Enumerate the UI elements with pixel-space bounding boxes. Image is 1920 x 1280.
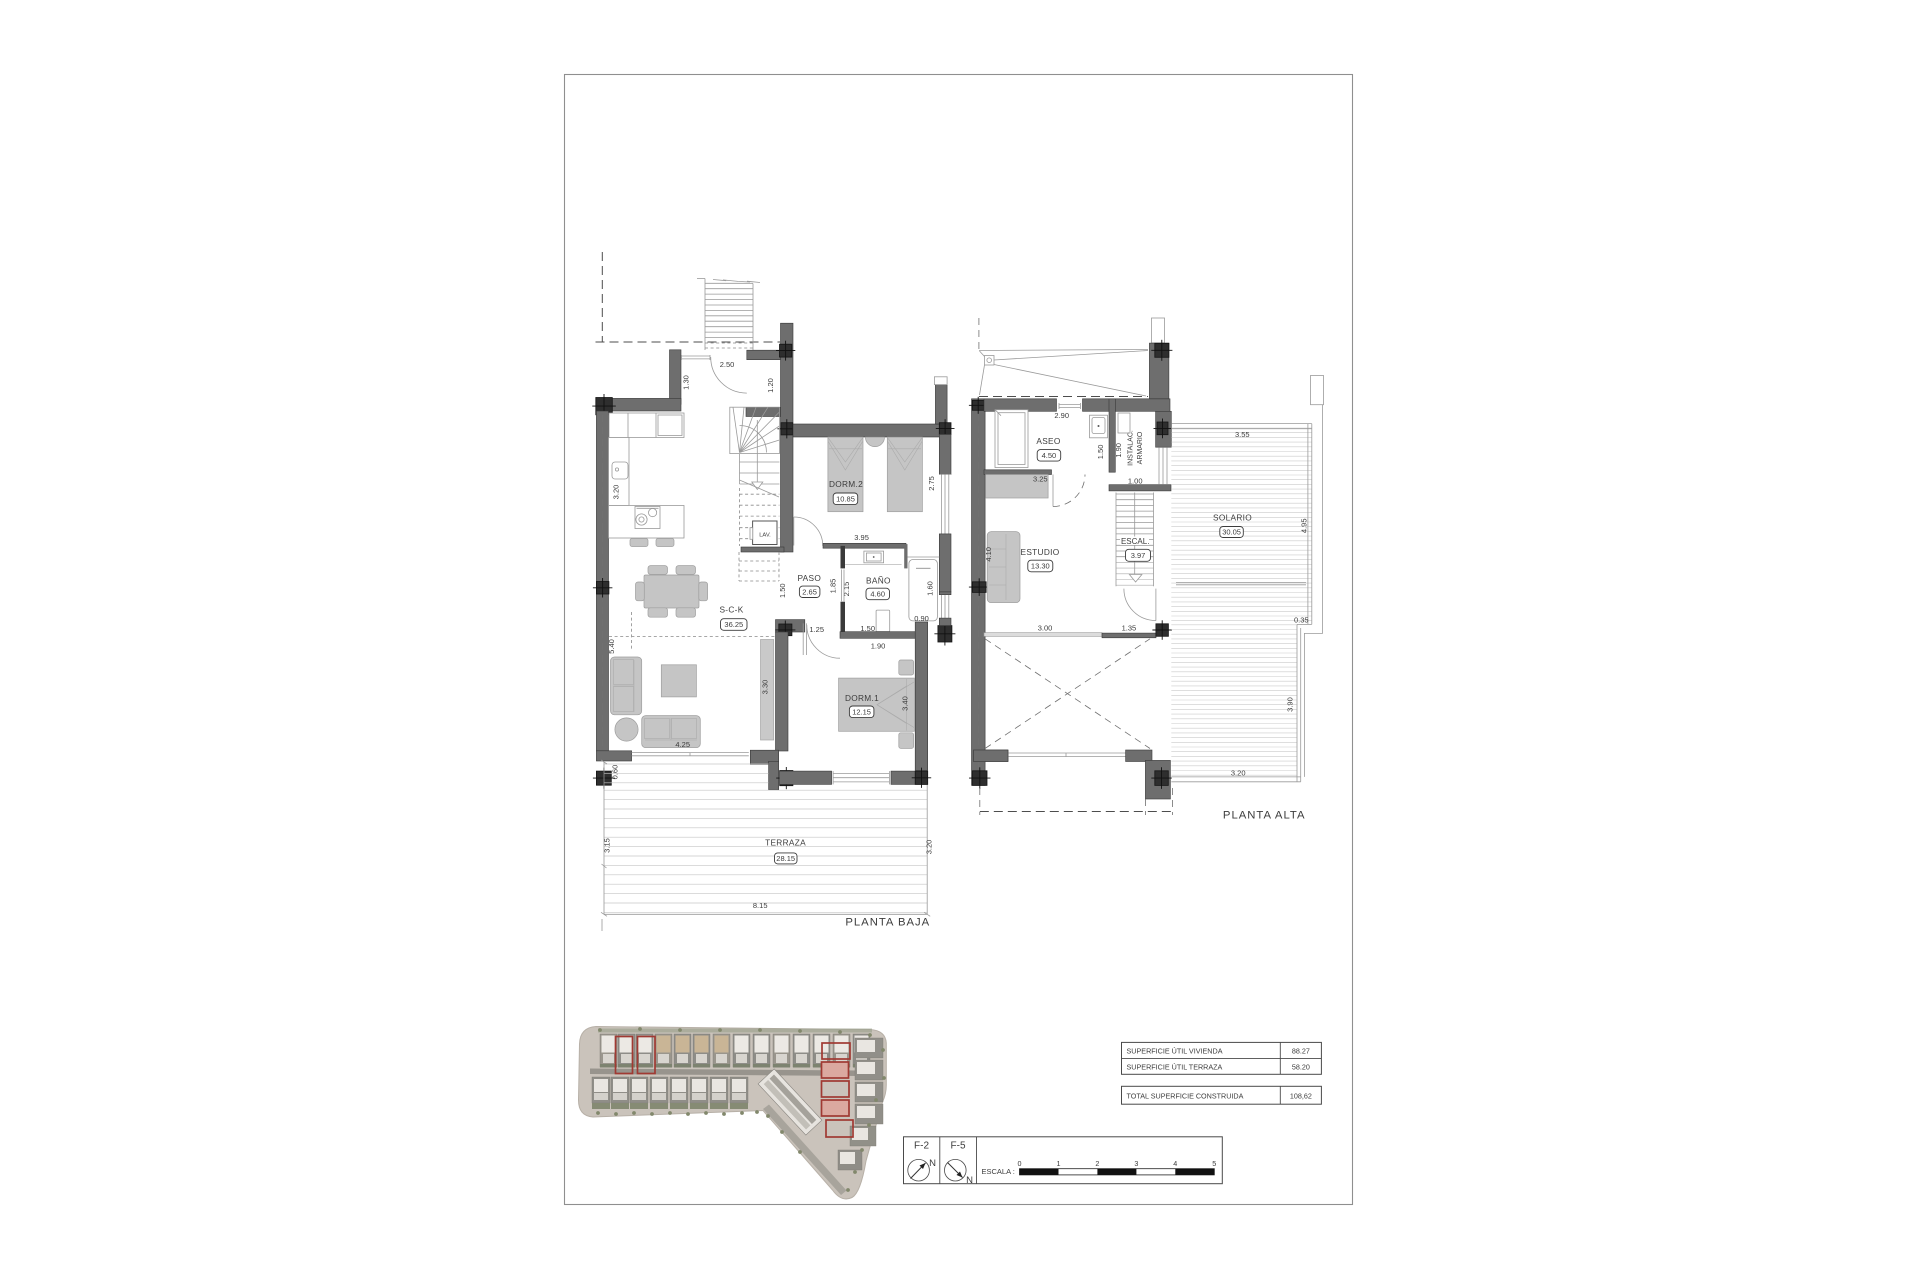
- svg-text:1.35: 1.35: [1122, 624, 1137, 633]
- svg-text:N: N: [929, 1158, 936, 1169]
- svg-text:1.30: 1.30: [681, 375, 690, 390]
- svg-text:SUPERFICIE ÚTIL VIVIENDA: SUPERFICIE ÚTIL VIVIENDA: [1127, 1047, 1223, 1056]
- svg-text:ASEO: ASEO: [1036, 436, 1061, 446]
- svg-text:F-2: F-2: [914, 1141, 929, 1152]
- svg-text:1.00: 1.00: [1128, 477, 1143, 486]
- svg-text:ESCALA :: ESCALA :: [982, 1167, 1015, 1176]
- svg-text:1.60: 1.60: [925, 581, 934, 596]
- svg-text:3.15: 3.15: [602, 838, 611, 853]
- svg-text:1.20: 1.20: [766, 378, 775, 393]
- svg-text:SOLARIO: SOLARIO: [1213, 513, 1252, 523]
- svg-text:TOTAL SUPERFICIE CONSTRUIDA: TOTAL SUPERFICIE CONSTRUIDA: [1127, 1092, 1244, 1101]
- svg-text:INSTALAC.: INSTALAC.: [1128, 430, 1135, 466]
- svg-text:ARMARIO: ARMARIO: [1137, 431, 1144, 464]
- svg-text:4: 4: [1173, 1159, 1177, 1168]
- svg-text:4.95: 4.95: [1299, 518, 1308, 533]
- svg-text:1: 1: [1057, 1159, 1061, 1168]
- svg-text:ESTUDIO: ESTUDIO: [1021, 547, 1060, 557]
- svg-text:8.15: 8.15: [753, 901, 768, 910]
- svg-text:3.20: 3.20: [611, 485, 620, 500]
- svg-text:3.97: 3.97: [1131, 551, 1146, 560]
- svg-text:S-C-K: S-C-K: [719, 605, 743, 615]
- svg-text:0.90: 0.90: [914, 614, 929, 623]
- svg-text:DORM.2: DORM.2: [829, 479, 863, 489]
- svg-text:0.60: 0.60: [611, 765, 620, 780]
- svg-text:3.00: 3.00: [1038, 624, 1053, 633]
- svg-text:3.90: 3.90: [1286, 697, 1295, 712]
- svg-text:1.50: 1.50: [778, 583, 787, 598]
- svg-text:2.15: 2.15: [842, 582, 851, 597]
- svg-text:4.10: 4.10: [984, 547, 993, 562]
- svg-text:TERRAZA: TERRAZA: [765, 837, 806, 847]
- svg-text:36.25: 36.25: [724, 620, 743, 629]
- svg-text:2.50: 2.50: [720, 360, 735, 369]
- svg-text:1.85: 1.85: [829, 579, 838, 594]
- svg-text:LAV.: LAV.: [759, 533, 771, 539]
- svg-text:4.60: 4.60: [870, 590, 885, 599]
- svg-text:2.75: 2.75: [927, 476, 936, 491]
- svg-text:4.50: 4.50: [1042, 451, 1057, 460]
- svg-text:PLANTA BAJA: PLANTA BAJA: [845, 917, 930, 929]
- svg-text:BAÑO: BAÑO: [866, 575, 891, 585]
- svg-text:30.05: 30.05: [1222, 528, 1241, 537]
- svg-text:4.25: 4.25: [675, 740, 690, 749]
- svg-text:3: 3: [1134, 1159, 1138, 1168]
- svg-text:2.65: 2.65: [802, 588, 817, 597]
- svg-text:5: 5: [1212, 1159, 1216, 1168]
- svg-text:1.90: 1.90: [871, 642, 886, 651]
- svg-text:12.15: 12.15: [852, 708, 871, 717]
- svg-text:88.27: 88.27: [1292, 1047, 1310, 1056]
- svg-text:PLANTA ALTA: PLANTA ALTA: [1223, 810, 1306, 822]
- svg-text:PASO: PASO: [797, 573, 821, 583]
- svg-text:1.25: 1.25: [809, 625, 824, 634]
- svg-text:3.95: 3.95: [854, 533, 869, 542]
- svg-text:F-5: F-5: [951, 1141, 966, 1152]
- svg-text:28.15: 28.15: [776, 854, 795, 863]
- svg-text:0: 0: [1018, 1159, 1022, 1168]
- svg-text:3.20: 3.20: [925, 840, 934, 855]
- svg-text:1.50: 1.50: [1096, 445, 1105, 460]
- svg-text:DORM.1: DORM.1: [845, 693, 879, 703]
- svg-text:SUPERFICIE ÚTIL TERRAZA: SUPERFICIE ÚTIL TERRAZA: [1127, 1063, 1223, 1072]
- svg-text:3.25: 3.25: [1033, 475, 1048, 484]
- svg-text:10.85: 10.85: [836, 495, 855, 504]
- svg-text:3.20: 3.20: [1231, 768, 1246, 777]
- svg-text:58.20: 58.20: [1292, 1063, 1310, 1072]
- svg-text:2: 2: [1095, 1159, 1099, 1168]
- svg-text:13.30: 13.30: [1031, 562, 1050, 571]
- svg-text:0.35: 0.35: [1294, 615, 1309, 624]
- svg-text:2.90: 2.90: [1054, 411, 1069, 420]
- svg-text:5.40: 5.40: [607, 639, 616, 654]
- svg-text:108,62: 108,62: [1290, 1092, 1312, 1101]
- svg-text:3.40: 3.40: [900, 696, 909, 711]
- svg-text:3.30: 3.30: [760, 680, 769, 695]
- svg-text:N: N: [966, 1175, 973, 1186]
- svg-text:1.90: 1.90: [1114, 443, 1123, 458]
- svg-text:3.55: 3.55: [1235, 430, 1250, 439]
- svg-text:ESCAL.: ESCAL.: [1121, 537, 1149, 546]
